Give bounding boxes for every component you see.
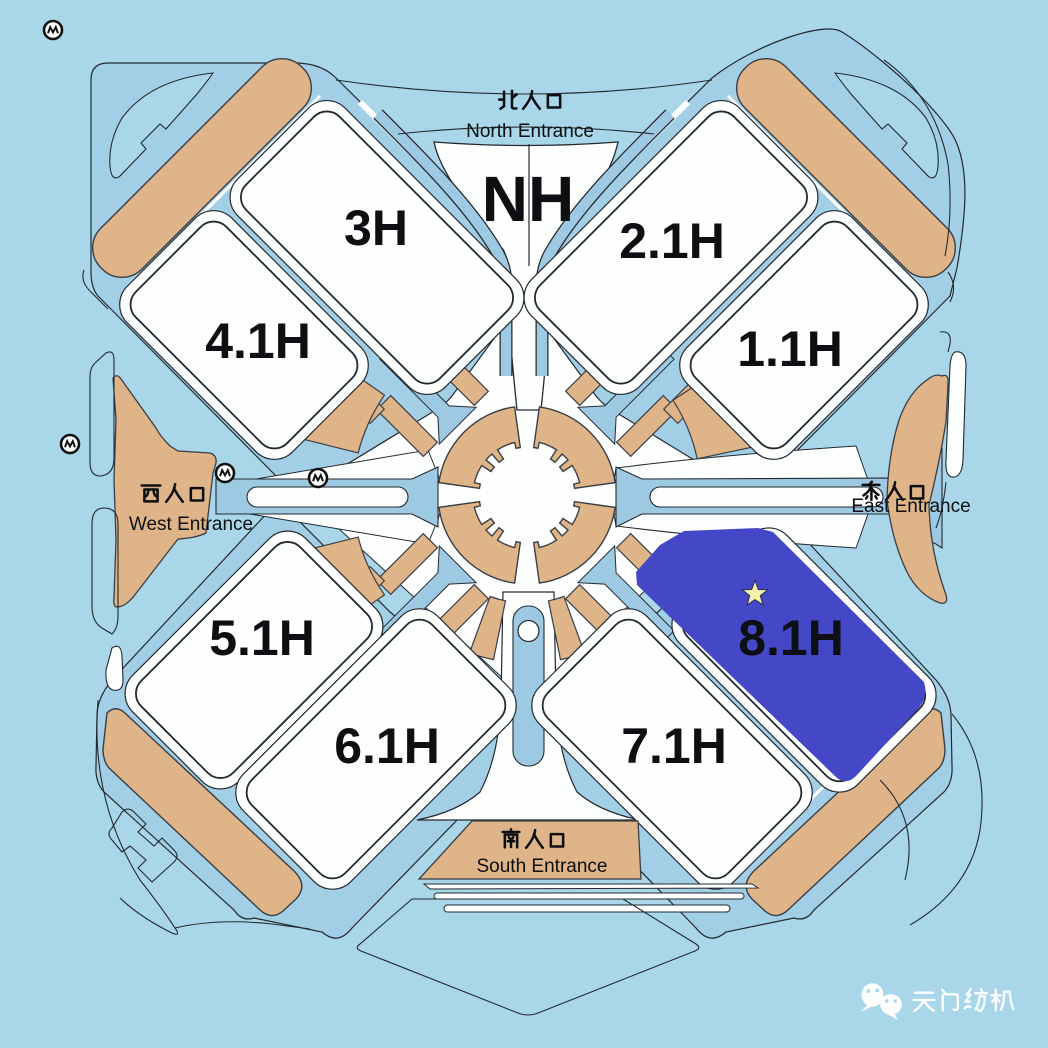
svg-text:7.1H: 7.1H (621, 718, 727, 774)
svg-text:8.1H: 8.1H (738, 610, 844, 666)
svg-text:NH: NH (482, 163, 574, 235)
svg-text:East Entrance: East Entrance (851, 496, 970, 517)
svg-text:2.1H: 2.1H (619, 213, 725, 269)
svg-text:5.1H: 5.1H (209, 610, 315, 666)
svg-text:1.1H: 1.1H (737, 321, 843, 377)
svg-text:West Entrance: West Entrance (129, 514, 253, 535)
svg-text:6.1H: 6.1H (334, 718, 440, 774)
svg-text:3H: 3H (344, 200, 408, 256)
svg-text:South Entrance: South Entrance (477, 856, 608, 877)
svg-text:4.1H: 4.1H (205, 313, 311, 369)
svg-text:North Entrance: North Entrance (466, 121, 594, 142)
